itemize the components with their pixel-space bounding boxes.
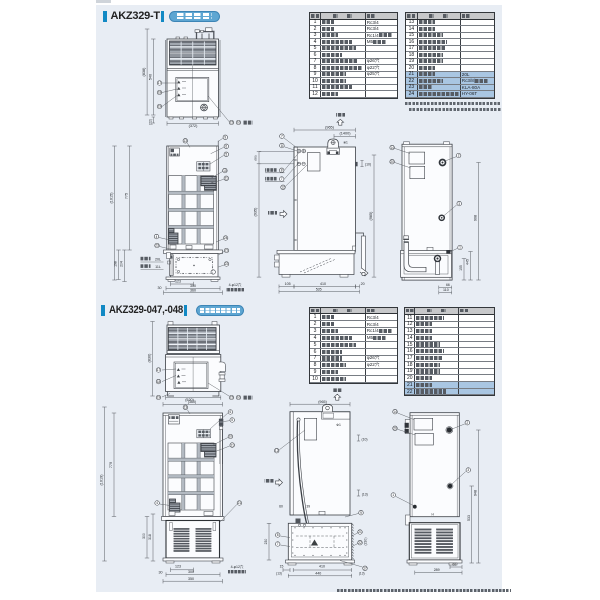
svg-text:30: 30 [159, 571, 163, 575]
svg-text:(1019): (1019) [100, 474, 104, 486]
svg-text:7: 7 [281, 177, 283, 181]
svg-text:21: 21 [238, 501, 242, 505]
svg-text:20: 20 [393, 426, 397, 430]
svg-text:410: 410 [320, 282, 326, 286]
svg-text:17: 17 [158, 81, 162, 85]
svg-text:7: 7 [277, 542, 279, 546]
svg-text:39: 39 [306, 505, 310, 509]
svg-text:110: 110 [443, 288, 449, 292]
svg-text:(360): (360) [188, 400, 196, 404]
svg-text:17: 17 [157, 368, 161, 372]
svg-text:(13): (13) [276, 571, 282, 575]
svg-text:19: 19 [157, 396, 161, 400]
svg-text:15: 15 [230, 396, 234, 400]
svg-text:4-φ12穴: 4-φ12穴 [229, 282, 242, 287]
svg-text:123: 123 [175, 564, 181, 568]
svg-text:289: 289 [434, 568, 440, 572]
svg-text:300: 300 [188, 570, 194, 574]
svg-text:※1: ※1 [343, 141, 348, 145]
svg-text:20L: 20L [155, 257, 161, 261]
svg-text:3: 3 [467, 468, 469, 472]
svg-text:12: 12 [281, 185, 285, 189]
svg-text:9: 9 [224, 135, 226, 139]
svg-text:24: 24 [224, 236, 228, 240]
svg-text:(1015): (1015) [110, 192, 114, 204]
svg-text:(13): (13) [359, 571, 365, 575]
svg-text:123: 123 [175, 280, 181, 284]
svg-text:2: 2 [466, 421, 468, 425]
svg-text:(372): (372) [189, 124, 199, 128]
svg-text:11: 11 [225, 176, 229, 180]
svg-text:20: 20 [390, 160, 394, 164]
svg-text:11: 11 [231, 443, 235, 447]
svg-text:360: 360 [190, 288, 196, 292]
svg-text:535: 535 [316, 287, 322, 291]
svg-text:105: 105 [285, 282, 291, 286]
svg-text:(935): (935) [254, 207, 258, 217]
svg-text:66: 66 [452, 563, 456, 567]
svg-text:6: 6 [225, 144, 227, 148]
svg-text:16: 16 [237, 396, 241, 400]
svg-text:3: 3 [458, 202, 460, 206]
svg-text:18: 18 [157, 380, 161, 384]
svg-text:(830): (830) [148, 353, 152, 363]
svg-text:23: 23 [155, 244, 159, 248]
svg-text:4: 4 [156, 235, 158, 239]
svg-text:4-φ12穴: 4-φ12穴 [231, 564, 244, 569]
svg-text:22: 22 [225, 262, 229, 266]
svg-text:(86): (86) [254, 155, 258, 160]
svg-text:410: 410 [319, 565, 325, 569]
svg-text:1: 1 [459, 246, 461, 250]
svg-text:(230): (230) [364, 538, 368, 546]
svg-text:13: 13 [184, 139, 188, 143]
svg-text:948: 948 [473, 490, 477, 496]
svg-text:(965): (965) [318, 400, 327, 404]
svg-text:775: 775 [125, 193, 129, 199]
svg-text:1: 1 [392, 493, 394, 497]
svg-text:15: 15 [280, 565, 284, 569]
svg-text:318: 318 [148, 534, 152, 540]
svg-text:198: 198 [114, 261, 118, 267]
svg-text:10: 10 [223, 169, 227, 173]
svg-text:30: 30 [158, 286, 162, 290]
svg-text:(1400): (1400) [340, 132, 352, 136]
svg-text:(985): (985) [369, 211, 373, 221]
svg-text:(10): (10) [365, 162, 371, 166]
svg-text:540: 540 [148, 74, 152, 80]
svg-text:※1: ※1 [336, 423, 341, 427]
svg-text:17: 17 [363, 566, 367, 570]
svg-text:22: 22 [358, 541, 362, 545]
svg-text:13: 13 [184, 405, 188, 409]
svg-text:300: 300 [142, 533, 146, 539]
svg-text:445: 445 [466, 259, 470, 265]
svg-text:10: 10 [229, 435, 233, 439]
svg-text:9: 9 [360, 511, 362, 515]
svg-text:7: 7 [281, 134, 283, 138]
svg-text:350: 350 [188, 577, 194, 581]
svg-text:20: 20 [361, 282, 365, 286]
svg-text:15: 15 [230, 121, 234, 125]
svg-text:533: 533 [467, 515, 471, 521]
svg-text:66: 66 [446, 283, 450, 287]
svg-text:8: 8 [281, 168, 283, 172]
svg-text:(965): (965) [325, 125, 335, 129]
svg-text:(13): (13) [362, 492, 368, 496]
svg-text:908: 908 [474, 215, 478, 221]
svg-text:12: 12 [275, 449, 279, 453]
svg-text:8: 8 [277, 533, 279, 537]
svg-text:18: 18 [158, 91, 162, 95]
svg-text:230: 230 [264, 539, 268, 545]
svg-text:4: 4 [156, 501, 158, 505]
svg-text:21: 21 [358, 530, 362, 534]
svg-text:440: 440 [315, 571, 321, 575]
svg-text:14: 14 [393, 410, 397, 414]
svg-text:5: 5 [231, 418, 233, 422]
svg-text:14: 14 [390, 146, 394, 150]
svg-text:(22): (22) [148, 119, 152, 125]
svg-text:6: 6 [230, 410, 232, 414]
svg-text:204: 204 [120, 261, 124, 267]
svg-text:21: 21 [225, 249, 229, 253]
svg-text:779: 779 [109, 462, 113, 468]
svg-text:11L: 11L [155, 265, 161, 269]
svg-text:(838): (838) [142, 67, 146, 77]
svg-text:300: 300 [190, 284, 196, 288]
svg-text:60: 60 [279, 505, 283, 509]
svg-text:155: 155 [459, 265, 463, 271]
svg-text:19: 19 [158, 105, 162, 109]
svg-text:(10): (10) [361, 437, 367, 441]
svg-text:5: 5 [225, 152, 227, 156]
svg-text:2: 2 [458, 154, 460, 158]
svg-text:16: 16 [237, 121, 241, 125]
svg-text:8: 8 [281, 144, 283, 148]
